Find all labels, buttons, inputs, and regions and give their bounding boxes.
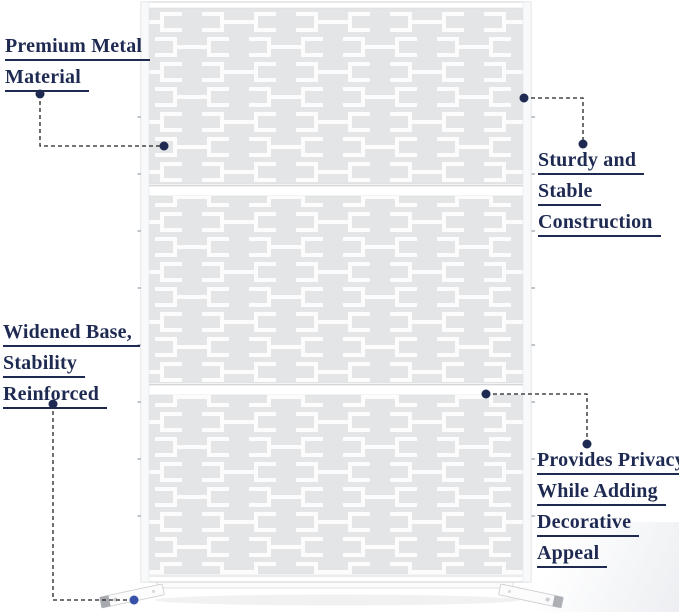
callout-widened-base-label: Widened Base, Stability Reinforced (3, 322, 140, 415)
callout-line: Construction (538, 212, 661, 237)
connector-dot (579, 140, 588, 149)
screen-panels (149, 8, 523, 574)
left-foot (100, 584, 165, 608)
callout-sturdy-construction-label: Sturdy and Stable Construction (538, 150, 661, 243)
callout-line: While Adding (537, 481, 666, 506)
callout-line: Provides Privacy (537, 450, 679, 475)
panel-separator (149, 384, 523, 385)
callout-line: Stability (3, 353, 85, 378)
callout-line: Reinforced (3, 384, 107, 409)
callout-line: Premium Metal (5, 36, 150, 61)
callout-line: Sturdy and (538, 150, 644, 175)
panel-separator (149, 185, 523, 186)
product-infographic: Premium Metal Material Sturdy and Stable… (0, 0, 679, 612)
privacy-screen-illustration (95, 0, 565, 612)
callout-line: Decorative (537, 512, 639, 537)
callout-line: Stable (538, 181, 601, 206)
callout-privacy-appeal-label: Provides Privacy While Adding Decorative… (537, 450, 679, 574)
connector-dot (583, 440, 592, 449)
callout-premium-metal-label: Premium Metal Material (5, 36, 150, 98)
right-post (523, 2, 531, 582)
callout-line: Widened Base, (3, 322, 140, 347)
callout-line: Material (5, 67, 89, 92)
callout-line: Appeal (537, 543, 607, 568)
